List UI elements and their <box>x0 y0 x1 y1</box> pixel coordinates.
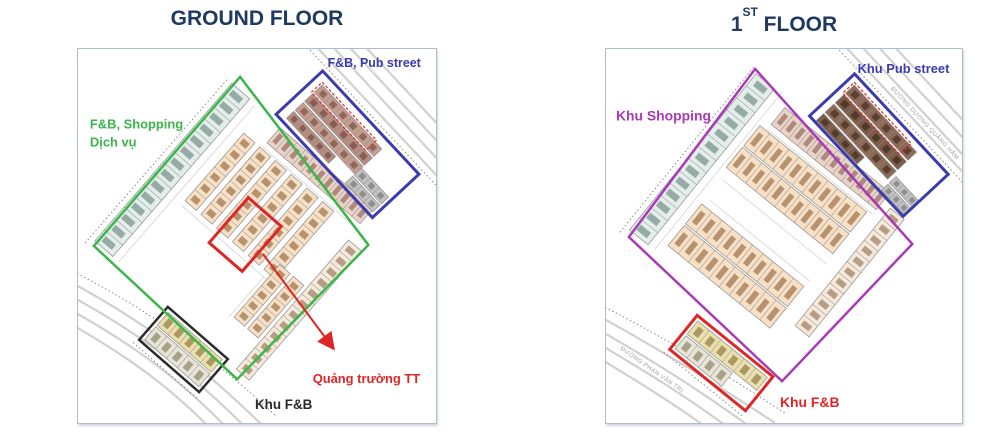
label-pub-street-first: Khu Pub street <box>858 61 950 76</box>
label-fnb-first: Khu F&B <box>780 394 839 410</box>
label-shopping-first: Khu Shopping <box>616 108 711 124</box>
zone-fnb-outline <box>139 307 228 392</box>
first-floor-plan: ĐƯỜNG DƯƠNG QUẢNG HÀM ĐƯỜNG PHAN VĂN TRỊ… <box>606 49 962 423</box>
label-pub-street: F&B, Pub street <box>328 56 421 70</box>
label-fnb: Khu F&B <box>255 397 313 412</box>
label-shopping-line2: Dịch vụ <box>90 135 137 150</box>
label-central-square: Quảng trường TT <box>313 371 421 386</box>
ground-floor-panel: F&B, Shopping Dịch vụ F&B, Pub street Qu… <box>77 48 437 424</box>
label-shopping-line1: F&B, Shopping <box>90 117 183 132</box>
ground-floor-title: GROUND FLOOR <box>77 3 437 35</box>
first-floor-title: 1ST FLOOR <box>605 3 963 35</box>
ground-floor-plan: F&B, Shopping Dịch vụ F&B, Pub street Qu… <box>78 49 436 423</box>
first-floor-title-rest: FLOOR <box>758 13 837 36</box>
first-floor-panel: ĐƯỜNG DƯƠNG QUẢNG HÀM ĐƯỜNG PHAN VĂN TRỊ… <box>605 48 963 424</box>
page: GROUND FLOOR 1ST FLOOR <box>0 0 1000 448</box>
first-floor-title-num: 1 <box>731 13 743 36</box>
first-floor-title-sup: ST <box>743 5 758 19</box>
site-boundary-dotted <box>620 67 754 232</box>
